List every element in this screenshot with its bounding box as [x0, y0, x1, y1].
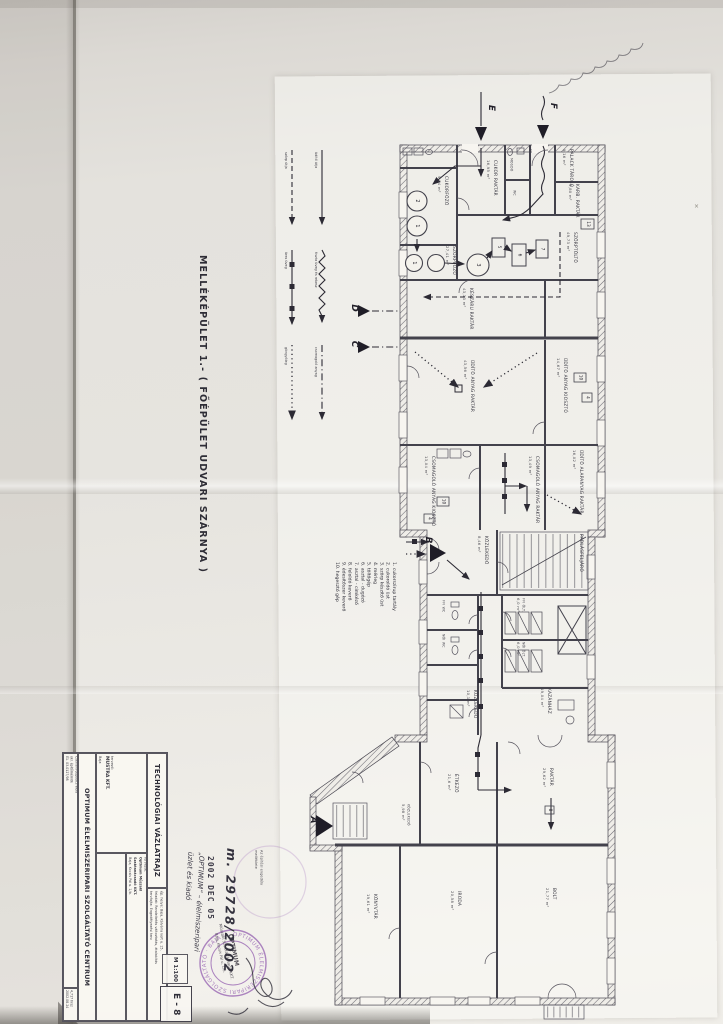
equip-number-5: 5: [496, 246, 502, 249]
title-block-designer: tervező: MUSTRA KFT. Baja: [96, 753, 147, 853]
title-block-parcel-date: 4,717 hrsz 2002.08.24: [63, 988, 78, 1021]
flow-legend-label-4: tiszta üveg és rekesz: [313, 252, 318, 330]
room-label-cukor-raktar: CUKOR RAKTÁR16,95 m²: [486, 160, 497, 212]
equipment-legend: 1. cukorszirup tartály 2. cukoroldó üst …: [330, 562, 396, 680]
room-label-iroda: IRODA20,58 m²: [450, 891, 461, 929]
room-label-udito-anyag-kioszto: ÜDÍTŐ ANYAG KIOSZTÓ14,67 m²: [556, 358, 567, 440]
room-label-szorpfozo: SZÖRPFŐZŐ27,41 m²: [445, 246, 456, 279]
marker-letter-a: A: [308, 816, 318, 824]
room-label-keszaru-raktar: KÉSZÁRU RAKTÁR43,13 m²: [462, 288, 473, 336]
room-label-cukorfozo: CUKORFŐZŐ9,04 m²: [437, 176, 448, 240]
room-label-udito-anyag-raktar: ÜDÍTŐ ANYAG RAKTÁR43,56 m²: [463, 360, 474, 432]
equipment-legend-item: 10. hegesztő gép: [333, 562, 339, 680]
room-label-etkezo: ÉTKEZŐ21,6 m²: [447, 774, 458, 812]
flow-legend-label-5: göngyöleg: [283, 347, 288, 425]
title-block: TECHNOLÓGIAI VÁZLATRAJZ ép. helye: Baja,…: [62, 752, 168, 1022]
title-block-responsible: felelős terv.: Cserfalvi-Jegodics Viola …: [63, 753, 78, 988]
plan-title: MELLÉKÉPÜLET 1.- ( FŐÉPÜLET UDVARI SZÁRN…: [197, 255, 208, 510]
equipment-legend-item: 4. mérleg: [371, 562, 377, 680]
tank-number-2: 2: [414, 199, 420, 202]
equipment-legend-item: 1. cukorszirup tartály: [390, 562, 396, 680]
marker-letter-c: C: [349, 341, 359, 348]
date-received-stamp: 2002 DEC 05: [206, 856, 215, 936]
marker-letter-e: E: [486, 105, 496, 112]
room-label-palack-tarolo: PALACK TÁROLÓ9,16 m²: [562, 149, 573, 181]
shop-outside-steps: [544, 1005, 584, 1019]
flow-legend-label-2: üdítő útja: [313, 152, 318, 230]
windows: [360, 192, 615, 1005]
tag-13: 13: [585, 221, 591, 227]
elevator-shaft: [558, 606, 586, 654]
room-label-csomagolo-anyag-kioszto: CSOMAGOLÓ ANYAG KIOSZTÓ13,04 m²: [424, 456, 435, 528]
stairs-attic: [500, 532, 588, 590]
room-label-kazanhaz: KAZÁNHÁZ19,04 m²: [540, 688, 551, 734]
sanitary-fixtures: [403, 148, 574, 724]
equipment-legend-item: 8. feloldó keverő: [345, 562, 351, 680]
room-label-noi-wc: NŐI WC: [441, 634, 445, 660]
room-label-wc: WC: [512, 190, 516, 206]
room-label-ffi-olt: FFI ÖLT.6,0 m²: [516, 598, 525, 626]
tank-number-1b: 1: [411, 261, 417, 264]
tank-number-1: 1: [414, 224, 420, 227]
room-label-ffi-wc: FFI WC: [441, 600, 445, 626]
title-block-consultant: tervezte: Optimum Műszaki Szaktanácsadó …: [126, 853, 147, 1021]
equip-number-6: 6: [517, 254, 523, 257]
equipment-tags: [424, 219, 594, 814]
tag-8: 8: [547, 809, 553, 812]
room-label-konyvtar: KÖNYVTÁR19,61 m²: [366, 894, 377, 940]
room-label-padlasfeljaro: PADLÁSFELJÁRÓ: [577, 534, 583, 592]
title-block-project: OPTIMUM ÉLELMISZERIPARI SZOLGÁLTATÓ CENT…: [78, 753, 96, 1021]
tank-number-3: 3: [475, 263, 481, 266]
equipment-legend-item: 5. töltőgép: [364, 562, 370, 680]
room-label-karb-raktar: KARB. RAKTÁR5,80 m²: [568, 184, 579, 214]
flow-legend-label-3: üres üveg: [283, 252, 288, 330]
flow-legend-label-1: szörp útja: [283, 152, 288, 230]
marker-letter-d: D: [349, 304, 359, 312]
flow-legend-label-6: csomagoló anyag: [313, 347, 318, 425]
room-label-mosdo: MOSDÓ: [509, 158, 513, 178]
tag-10-a: 10: [578, 375, 584, 381]
room-label-noi-olt: NŐI ÖLT.6,0 m²: [516, 642, 525, 670]
room-label-udito-alapanyag-raktar: ÜDÍTŐ ALAPANYAG RAKTÁR16,02 m²: [572, 450, 583, 528]
scanned-floor-plan-page: E F B A C D 13 10 4 10 4 8 2 1 1 3 5 6 7: [0, 0, 723, 1024]
equipment-legend-item: 7. asztal - címkéző: [352, 562, 358, 680]
equipment-legend-item: 3. szörp készítő üst: [377, 562, 383, 680]
room-label-csomagolo-anyag-raktar: CSOMAGOLÓ ANYAG RAKTÁR13,49 m²: [528, 456, 539, 528]
room-label-szorptolto: SZÖRPTÖLTŐ49,73 m²: [566, 232, 577, 278]
room-label-kozlekedo-2: KÖZLEKEDŐ10,1 m²: [466, 690, 477, 742]
room-label-raktar: RAKTÁR29,62 m²: [542, 768, 553, 806]
marker-letter-b: B: [423, 537, 433, 544]
equipment-legend-item: 9. édesítőszer keverő: [339, 562, 345, 680]
title-block-empty-cell: [96, 853, 126, 1021]
equip-number-7: 7: [540, 248, 546, 251]
title-block-drawing-type: TECHNOLÓGIAI VÁZLATRAJZ: [147, 753, 167, 888]
equipment-legend-item: 6. asztal - dugózó: [358, 562, 364, 680]
room-label-kozlekedo-3: KÖZLEKEDŐ5,98 m²: [401, 804, 410, 846]
room-label-kozlekedo-1: KÖZLEKEDŐ8,46 m²: [477, 536, 488, 592]
flow-legend-arrows: [292, 150, 325, 419]
stamp-note: Az építési engedély melléklete: [252, 850, 264, 945]
equipment-boxes: [492, 238, 548, 266]
stairs-entry: [333, 803, 367, 839]
tag-10-b: 10: [441, 499, 447, 505]
pencil-mark: ×: [694, 203, 699, 210]
marker-letter-f: F: [548, 103, 558, 110]
equipment-legend-item: 2. cukoroldó üst: [383, 562, 389, 680]
room-label-bolt: BOLT21,77 m²: [545, 888, 556, 926]
faint-stamp-arc: [234, 846, 306, 918]
tag-4-a: 4: [585, 396, 591, 399]
